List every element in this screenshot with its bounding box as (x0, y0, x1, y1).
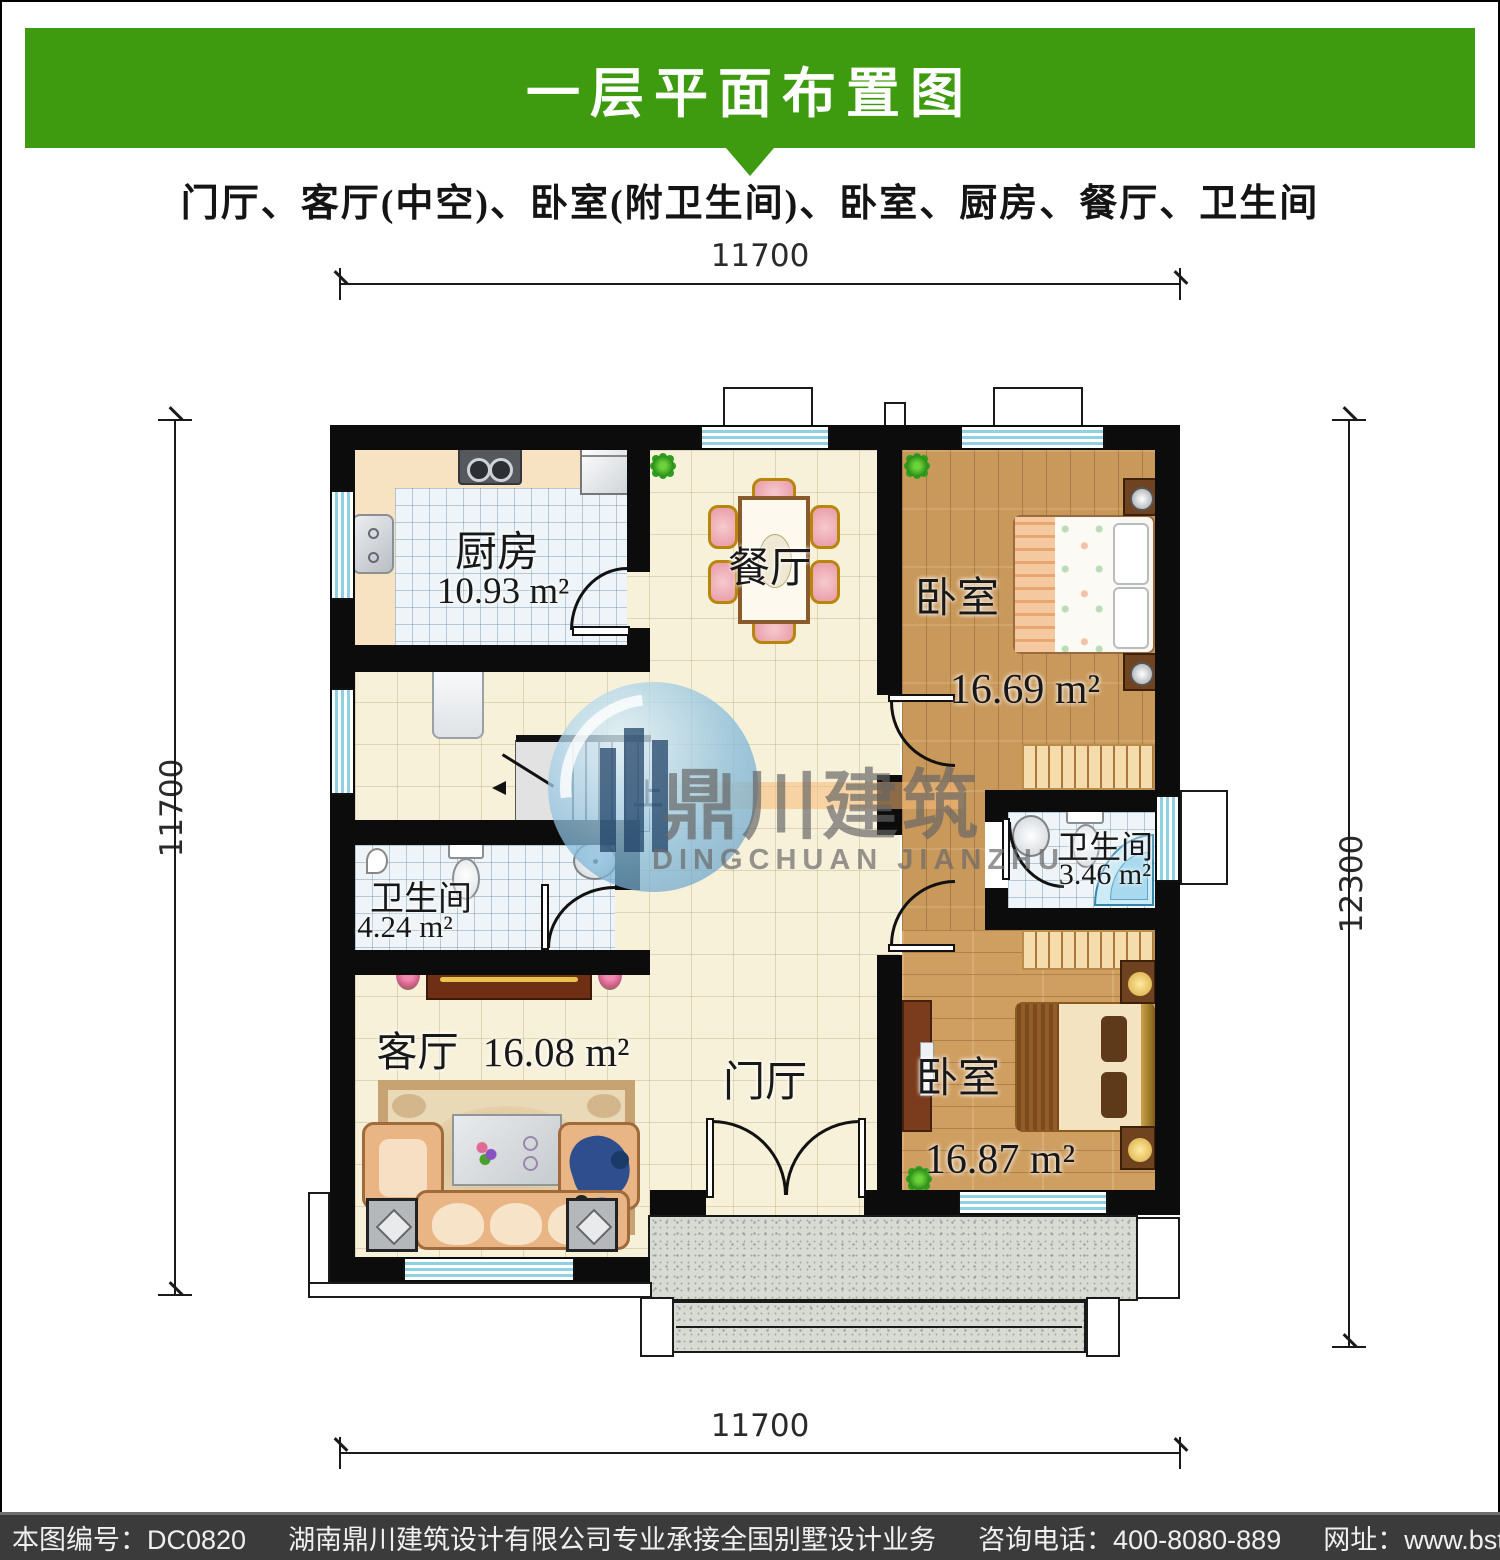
room-name-living: 客厅 (377, 1029, 459, 1075)
watermark-en: DINGCHUAN JIANZHU (652, 844, 1065, 877)
porch (648, 1215, 1138, 1301)
wall-kitchen-bottom (330, 645, 650, 672)
plant-icon (906, 455, 928, 477)
dimension-left-label: 11700 (154, 728, 190, 888)
page-title: 一层平面布置图 (526, 49, 974, 128)
dimension-top-line (340, 283, 1180, 285)
entrance-door-leaf-right (858, 1118, 866, 1198)
dimension-bottom-line (340, 1452, 1180, 1454)
porch-side-pad (1136, 1217, 1180, 1299)
wall-ensuite-bottom (985, 908, 1180, 930)
fridge-icon (580, 443, 630, 495)
dimension-right-end-top (1332, 419, 1366, 421)
apron-left (308, 1192, 330, 1292)
dimension-right-end-bottom (1332, 1346, 1366, 1348)
stove-icon (458, 447, 522, 485)
porch-post-left (640, 1297, 674, 1357)
room-area-living: 16.08 m² (483, 1029, 630, 1075)
room-label-bedroom-top: 卧室 (897, 564, 1017, 625)
room-label-bedroom-bottom: 卧室 (898, 1044, 1018, 1105)
door-leaf-bedroom-bottom (888, 944, 955, 952)
dimension-left-end-top (158, 419, 192, 421)
dimension-bottom-label: 11700 (610, 1408, 910, 1444)
bed-top (1013, 515, 1155, 654)
plant-icon (652, 455, 674, 477)
nightstand-lamp (1120, 1126, 1156, 1170)
wall-kitchen-right-upper (627, 425, 650, 572)
door-leaf-kitchen (572, 626, 630, 636)
window-bay-top-right (993, 387, 1083, 427)
window-bay-right (1180, 790, 1228, 885)
flue-stub (884, 402, 906, 427)
window-hall (332, 688, 353, 795)
dimension-top-label: 11700 (610, 238, 910, 274)
room-label-dining: 餐厅 (710, 534, 830, 595)
window-bedroom-top (960, 427, 1105, 448)
nightstand-lamp (1120, 960, 1156, 1004)
room-area-bedroom-top: 16.69 m² (945, 666, 1105, 714)
dimension-right-label: 12300 (1334, 804, 1370, 964)
window-dining (700, 427, 830, 448)
dimension-right-line (1348, 420, 1350, 1348)
dimension-left-end-bottom (158, 1294, 192, 1296)
room-label-foyer: 门厅 (700, 1048, 830, 1109)
wall-bath-main-bottom (330, 950, 650, 975)
footer-website: 网址：www.bstzcs.com (1323, 1518, 1500, 1557)
porch-post-right (1086, 1297, 1120, 1357)
window-bay-top-left (723, 387, 813, 427)
wall-ensuite-top (985, 790, 1180, 812)
header-banner: 一层平面布置图 (25, 28, 1475, 148)
bed-bottom (1015, 1002, 1155, 1132)
nightstand (1123, 653, 1157, 691)
window-living (403, 1259, 575, 1280)
room-area-bedroom-bottom: 16.87 m² (920, 1136, 1080, 1184)
watermark-cn: 鼎川建筑 (662, 744, 982, 854)
wardrobe-top (1022, 744, 1155, 790)
wall-kitchen-right-lower (627, 628, 650, 647)
nightstand (1123, 478, 1157, 516)
speaker-icon (566, 1198, 618, 1252)
room-area-bathroom-main: 4.24 m² (345, 909, 465, 945)
floor-plan-page: 一层平面布置图 门厅、客厅(中空)、卧室(附卫生间)、卧室、厨房、餐厅、卫生间 … (0, 0, 1500, 1560)
dimension-left-line (174, 420, 176, 1296)
footer-plan-number: 本图编号：DC0820 (12, 1518, 246, 1557)
toilet-tank-main (448, 843, 484, 859)
footer-phone: 咨询电话：400-8080-889 (978, 1518, 1281, 1557)
room-label-living: 客厅 16.08 m² (368, 1018, 638, 1078)
wall-foyer-left (650, 1190, 706, 1215)
coffee-table-icon (452, 1114, 562, 1186)
window-kitchen (332, 490, 353, 600)
wall-ensuite-left-lower (985, 888, 1008, 908)
speaker-icon (366, 1198, 418, 1252)
kitchen-sink-icon (352, 514, 394, 574)
porch-step-line (676, 1326, 1082, 1328)
wall-central-upper (877, 425, 902, 695)
apron-bottom (308, 1282, 652, 1298)
footer-bar: 本图编号：DC0820 湖南鼎川建筑设计有限公司专业承接全国别墅设计业务 咨询电… (0, 1512, 1500, 1560)
window-bedroom-bottom (958, 1192, 1108, 1213)
room-area-kitchen: 10.93 m² (418, 570, 588, 613)
footer-company: 湖南鼎川建筑设计有限公司专业承接全国别墅设计业务 (288, 1518, 936, 1557)
dimension-tick (334, 1437, 349, 1452)
room-list-subtitle: 门厅、客厅(中空)、卧室(附卫生间)、卧室、厨房、餐厅、卫生间 (0, 172, 1500, 227)
dimension-tick (1174, 1437, 1189, 1452)
